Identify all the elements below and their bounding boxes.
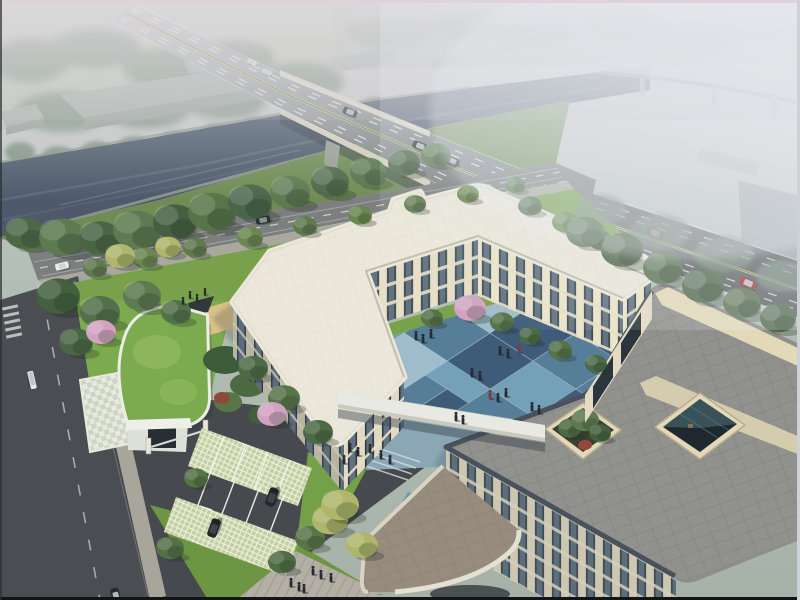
red-shrub	[214, 392, 230, 404]
red-shrub	[578, 440, 592, 450]
entrance-doorway	[148, 428, 176, 448]
architectural-rendering	[0, 0, 800, 600]
aerial-scene	[0, 0, 800, 600]
gate-pillar	[146, 438, 151, 454]
